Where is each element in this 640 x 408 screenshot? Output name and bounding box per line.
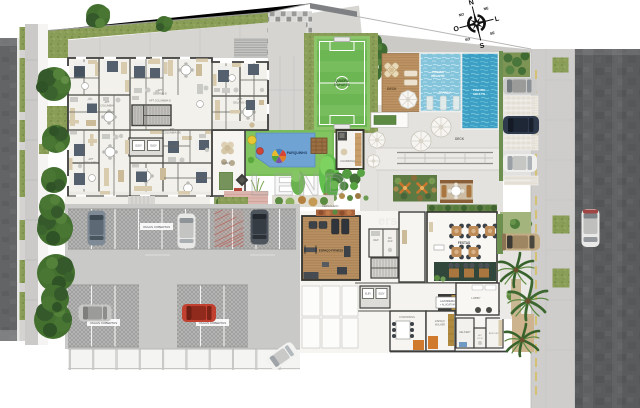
svg-text:COLUMBIA: COLUMBIA [84, 161, 98, 165]
svg-text:CHURRASQ.: CHURRASQ. [340, 159, 356, 163]
svg-text:APT: APT [237, 97, 242, 101]
svg-text:COWORKING: COWORKING [399, 316, 415, 319]
svg-text:DELIVERY: DELIVERY [459, 332, 471, 334]
svg-text:LIVING: LIVING [222, 162, 230, 165]
svg-text:DECK: DECK [387, 87, 397, 91]
svg-text:ADULTO: ADULTO [473, 92, 486, 96]
svg-text:APT: APT [104, 100, 109, 104]
svg-text:DELANO-D: DELANO-D [233, 101, 247, 105]
svg-text:PC.D: PC.D [477, 338, 483, 340]
svg-text:COLUMBIA: COLUMBIA [100, 104, 114, 108]
svg-text:PARQUINHO: PARQUINHO [287, 151, 308, 155]
svg-text:INFANTIL: INFANTIL [431, 74, 445, 78]
svg-text:ers: ers [378, 213, 398, 228]
svg-text:LEND: LEND [250, 167, 350, 202]
svg-text:VAGAS COBERTAS: VAGAS COBERTAS [90, 321, 117, 325]
svg-text:LOBBY: LOBBY [471, 296, 480, 300]
svg-text:ACD: ACD [387, 240, 392, 243]
svg-text:+ ALUGATIVA: + ALUGATIVA [440, 304, 455, 307]
svg-text:ELEV: ELEV [365, 294, 371, 296]
svg-text:ESPAÇO FITNESS: ESPAÇO FITNESS [319, 249, 343, 253]
svg-text:APT COLUMBIA-D: APT COLUMBIA-D [149, 99, 171, 103]
svg-text:ESPORTE: ESPORTE [334, 83, 349, 87]
svg-text:DEP: DEP [374, 239, 379, 242]
svg-text:DECK: DECK [455, 137, 465, 141]
svg-text:COLUMBIA-DE: COLUMBIA-DE [163, 131, 181, 135]
svg-text:APT: APT [169, 127, 174, 131]
svg-text:ELEV: ELEV [150, 145, 157, 148]
svg-text:VAGAS COBERTAS: VAGAS COBERTAS [143, 225, 170, 229]
svg-text:PRAINHA: PRAINHA [439, 91, 452, 95]
svg-text:ELEV: ELEV [379, 294, 385, 296]
svg-text:PERGOLADO: PERGOLADO [322, 204, 338, 208]
svg-text:WC: WC [478, 335, 482, 337]
svg-text:BICICLET.: BICICLET. [489, 333, 500, 335]
svg-text:APT: APT [88, 157, 93, 161]
svg-text:ELEV: ELEV [135, 145, 142, 148]
svg-text:FESTAS: FESTAS [458, 241, 470, 245]
svg-text:MULHER: MULHER [435, 324, 445, 327]
